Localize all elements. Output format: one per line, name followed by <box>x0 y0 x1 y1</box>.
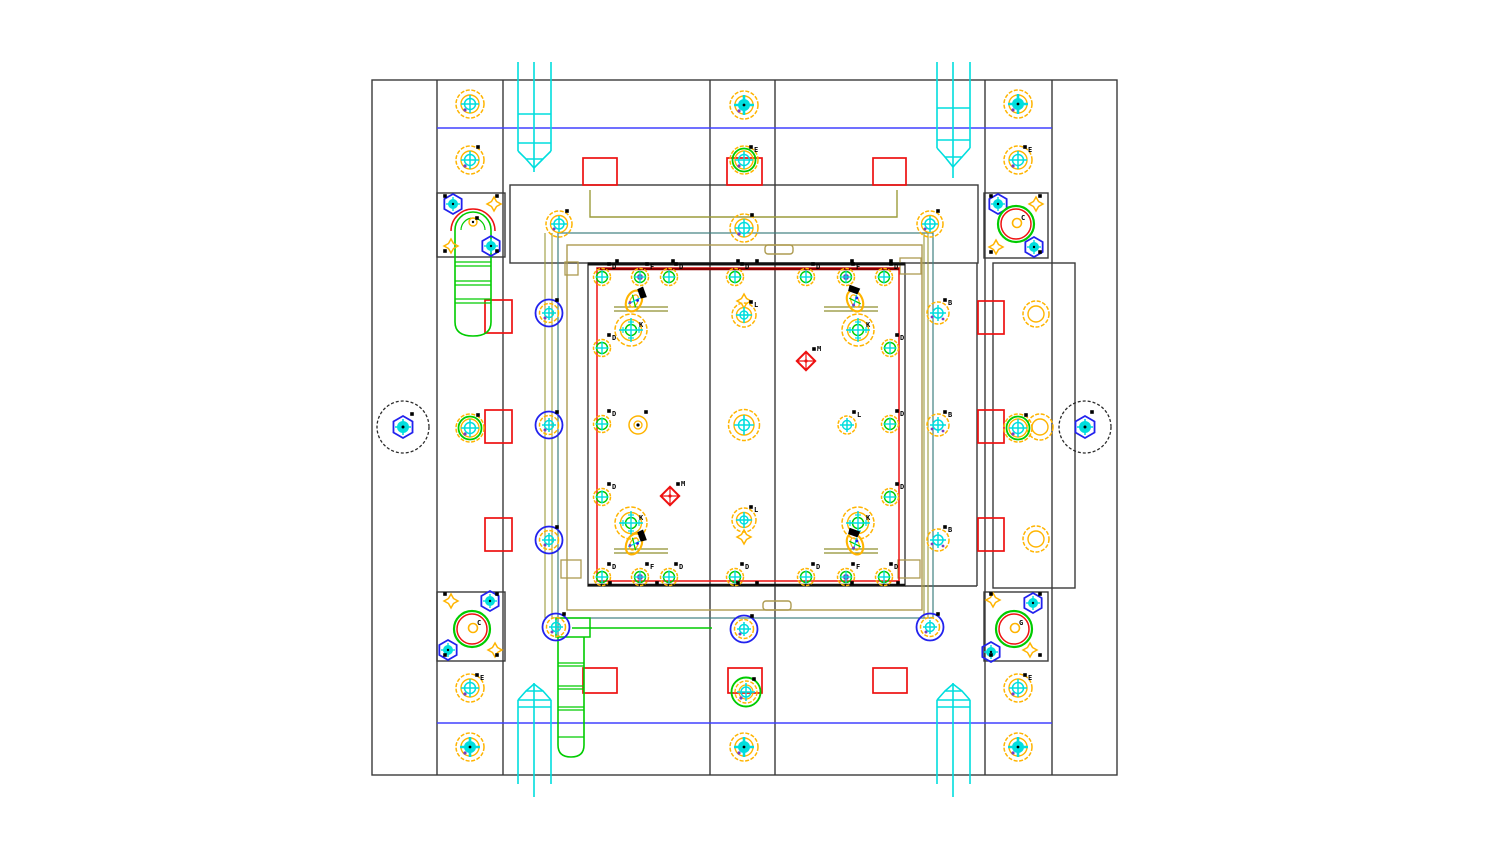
tick-mark <box>443 592 447 596</box>
tick-mark <box>1090 410 1094 414</box>
tick-mark <box>749 505 753 509</box>
tick-mark <box>943 298 947 302</box>
mold-base-drawing: CCGEEEEBBBLDFDDDFDDFDDDFDDDDDDDLLKKKKMM <box>0 0 1490 856</box>
detail-dot <box>739 696 742 699</box>
tick-mark <box>749 300 753 304</box>
hole-label: B <box>948 411 952 419</box>
detail-dot <box>942 545 945 548</box>
hole-label: D <box>679 263 683 271</box>
center-dot <box>743 746 746 749</box>
tick-mark <box>989 592 993 596</box>
hole-label: D <box>816 263 820 271</box>
tick-mark <box>608 581 612 585</box>
detail-dot <box>551 631 554 634</box>
hole-label: D <box>679 563 683 571</box>
center-dot <box>1084 426 1087 429</box>
center-dot <box>490 245 492 247</box>
bushing-label: G <box>1019 619 1023 627</box>
tick-mark <box>852 410 856 414</box>
tick-mark <box>615 259 619 263</box>
detail-dot <box>925 631 928 634</box>
tick-mark <box>555 525 559 529</box>
tick-mark <box>607 262 611 266</box>
datum-label: M <box>681 480 685 488</box>
tick-mark <box>750 614 754 618</box>
tick-mark <box>755 259 759 263</box>
clamp-pin-dot <box>472 221 474 223</box>
tick-mark <box>645 562 649 566</box>
hole-label: E <box>1028 146 1032 154</box>
tick-mark <box>750 213 754 217</box>
tick-mark <box>943 525 947 529</box>
tick-mark <box>896 581 900 585</box>
detail-dot <box>942 318 945 321</box>
datum-dot <box>804 359 807 362</box>
hole-label: D <box>612 563 616 571</box>
tick-mark <box>740 562 744 566</box>
hole-label: D <box>745 263 749 271</box>
tick-mark <box>1038 250 1042 254</box>
hole-label: L <box>857 411 861 419</box>
tick-mark <box>443 653 447 657</box>
tick-mark <box>555 298 559 302</box>
datum-label: M <box>817 345 821 353</box>
hole-label: B <box>948 526 952 534</box>
tick-mark <box>936 612 940 616</box>
hole-label: F <box>856 563 860 571</box>
detail-dot <box>1011 164 1014 167</box>
center-dot <box>1033 246 1035 248</box>
center-dot <box>447 649 449 651</box>
tick-mark <box>889 562 893 566</box>
tick-mark <box>989 653 993 657</box>
detail-dot <box>739 633 742 636</box>
detail-dot <box>544 544 547 547</box>
center-dot <box>1032 602 1034 604</box>
hole-label: L <box>754 301 758 309</box>
center-dot <box>489 600 491 602</box>
detail-dot <box>931 316 934 319</box>
tick-mark <box>645 262 649 266</box>
center-dot <box>997 203 999 205</box>
tick-mark <box>607 409 611 413</box>
tick-mark <box>443 249 447 253</box>
hole-label: E <box>1028 674 1032 682</box>
detail-dot <box>1011 692 1014 695</box>
tick-mark <box>811 562 815 566</box>
detail-dot <box>463 108 466 111</box>
detail-dot <box>931 543 934 546</box>
tick-mark <box>644 410 648 414</box>
hole-label: D <box>894 563 898 571</box>
tick-mark <box>565 209 569 213</box>
center-dot <box>743 104 746 107</box>
tick-mark <box>895 482 899 486</box>
center-dot <box>1017 103 1020 106</box>
tick-mark <box>895 333 899 337</box>
tick-mark <box>676 482 680 486</box>
tick-mark <box>1038 653 1042 657</box>
hole-label: D <box>612 410 616 418</box>
tick-mark <box>889 259 893 263</box>
detail-dot <box>553 228 556 231</box>
center-dot <box>469 746 472 749</box>
tick-mark <box>495 592 499 596</box>
center-dot <box>452 203 454 205</box>
detail-dot <box>1011 108 1014 111</box>
detail-dot <box>463 751 466 754</box>
tick-mark <box>495 249 499 253</box>
bushing-label: C <box>1021 214 1025 222</box>
tick-mark <box>607 562 611 566</box>
tick-mark <box>607 333 611 337</box>
detail-dot <box>737 751 740 754</box>
tick-mark <box>989 194 993 198</box>
datum-dot <box>668 494 671 497</box>
tick-mark <box>851 562 855 566</box>
tick-mark <box>1023 673 1027 677</box>
detail-dot <box>1011 751 1014 754</box>
hole-label: D <box>612 263 616 271</box>
tick-mark <box>850 259 854 263</box>
tick-mark <box>671 259 675 263</box>
detail-dot <box>1011 432 1014 435</box>
hole-label: D <box>816 563 820 571</box>
center-dot <box>990 651 992 653</box>
tick-mark <box>495 194 499 198</box>
hole-label: L <box>754 506 758 514</box>
detail-dot <box>544 317 547 320</box>
tick-mark <box>1023 145 1027 149</box>
tick-mark <box>475 216 479 220</box>
detail-dot <box>737 109 740 112</box>
detail-dot <box>463 692 466 695</box>
tick-mark <box>410 412 414 416</box>
tick-mark <box>1038 194 1042 198</box>
tick-mark <box>475 673 479 677</box>
bushing-label: C <box>477 619 481 627</box>
hole-label: E <box>480 674 484 682</box>
tick-mark <box>850 581 854 585</box>
hole-label: D <box>612 483 616 491</box>
detail-dot <box>463 432 466 435</box>
tick-mark <box>562 612 566 616</box>
hole-label: D <box>900 334 904 342</box>
tick-mark <box>740 262 744 266</box>
tick-mark <box>655 581 659 585</box>
hole-label: F <box>650 263 654 271</box>
tick-mark <box>752 677 756 681</box>
hole-label: D <box>745 563 749 571</box>
center-dot <box>402 426 405 429</box>
tick-mark <box>811 262 815 266</box>
center-dot <box>1017 746 1020 749</box>
hole-label: F <box>856 263 860 271</box>
hole-label: D <box>900 483 904 491</box>
tick-mark <box>895 409 899 413</box>
tick-mark <box>736 259 740 263</box>
hole-label: E <box>754 146 758 154</box>
hole-label: B <box>948 299 952 307</box>
detail-dot <box>544 429 547 432</box>
tick-mark <box>674 562 678 566</box>
detail-dot <box>737 232 740 235</box>
tick-mark <box>1024 413 1028 417</box>
tick-mark <box>476 145 480 149</box>
detail-dot <box>942 430 945 433</box>
tick-mark <box>495 653 499 657</box>
tick-mark <box>736 581 740 585</box>
detail-dot <box>737 164 740 167</box>
tick-mark <box>755 581 759 585</box>
hole-label: F <box>650 563 654 571</box>
tick-mark <box>1038 592 1042 596</box>
tick-mark <box>943 410 947 414</box>
detail-dot <box>463 164 466 167</box>
cad-application-canvas[interactable]: CCGEEEEBBBLDFDDDFDDFDDDFDDDDDDDLLKKKKMM <box>0 0 1490 856</box>
tick-mark <box>936 209 940 213</box>
tick-mark <box>443 194 447 198</box>
tick-mark <box>749 145 753 149</box>
tick-mark <box>476 413 480 417</box>
detail-dot <box>924 228 927 231</box>
tick-mark <box>607 482 611 486</box>
center-dot <box>636 423 639 426</box>
detail-dot <box>931 428 934 431</box>
tick-mark <box>555 410 559 414</box>
tick-mark <box>989 250 993 254</box>
tick-mark <box>812 347 816 351</box>
hole-label: D <box>900 410 904 418</box>
hole-label: D <box>894 263 898 271</box>
